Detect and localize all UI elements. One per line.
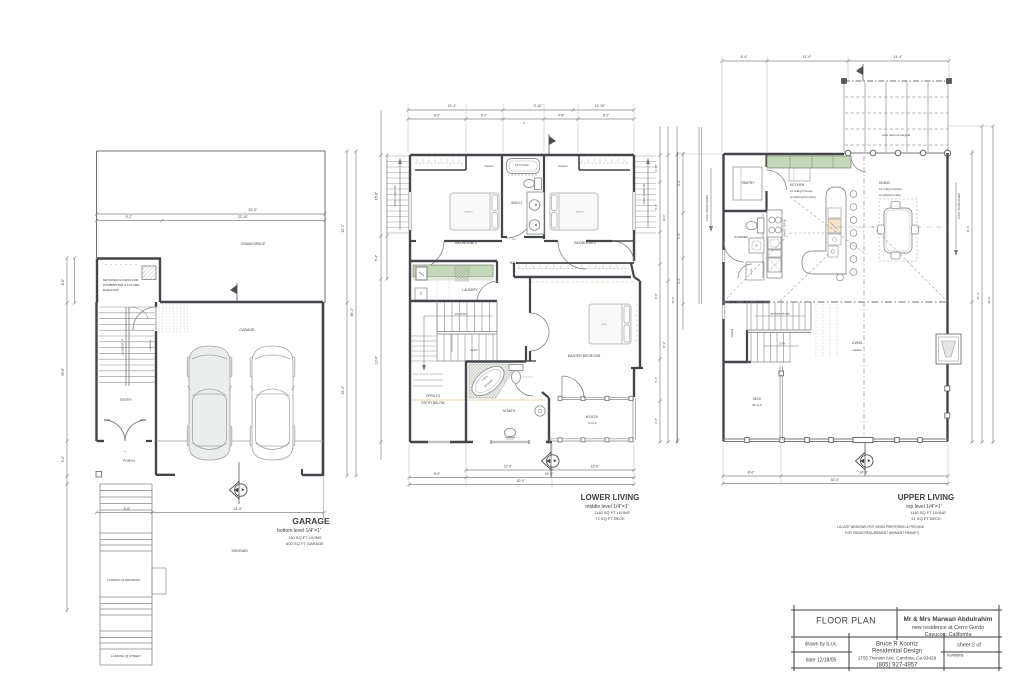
svg-text:king: king <box>601 322 607 326</box>
svg-text:bottom level 1/4"=1': bottom level 1/4"=1' <box>277 528 321 534</box>
svg-text:8'-0": 8'-0" <box>434 472 442 476</box>
svg-text:dresser: dresser <box>558 164 567 168</box>
svg-text:PANTRY: PANTRY <box>742 181 756 185</box>
svg-text:DECK: DECK <box>753 397 763 401</box>
svg-text:OPEN TO: OPEN TO <box>426 394 441 398</box>
svg-text:13 RISERS UP: 13 RISERS UP <box>122 338 125 355</box>
svg-text:8'-8": 8'-8" <box>654 293 658 299</box>
svg-text:33'-6": 33'-6" <box>61 368 65 376</box>
svg-text:FLOOR PLAN: FLOOR PLAN <box>816 616 876 626</box>
svg-text:110 SQ FT LIVING: 110 SQ FT LIVING <box>288 535 321 540</box>
svg-text:queen: queen <box>465 210 473 214</box>
svg-text:conc patio w/ pergola: conc patio w/ pergola <box>882 133 911 137</box>
svg-text:vaulted: vaulted <box>852 348 861 352</box>
svg-text:DINING: DINING <box>879 181 891 185</box>
svg-text:GARAGE: GARAGE <box>239 328 255 332</box>
svg-text:new residence at Cerro G: new residence at Cerro Gordo <box>912 625 984 631</box>
svg-text:5'-4": 5'-4" <box>654 377 658 383</box>
svg-text:5'-4": 5'-4" <box>654 204 658 210</box>
svg-text:16'-6": 16'-6" <box>375 192 379 200</box>
svg-text:8'-0": 8'-0" <box>748 471 756 475</box>
svg-text:landing: landing <box>730 328 734 337</box>
svg-text:6'-6": 6'-6" <box>61 279 65 285</box>
svg-text:5'0 O Tub/shr: 5'0 O Tub/shr <box>515 164 529 167</box>
svg-text:CRAWLSPACE: CRAWLSPACE <box>241 242 266 246</box>
svg-text:46'-0": 46'-0" <box>671 296 675 303</box>
svg-text:72 SQ FT DECK: 72 SQ FT DECK <box>595 516 625 521</box>
svg-text:72 sq ft: 72 sq ft <box>587 421 596 425</box>
svg-text:queen: queen <box>576 210 584 214</box>
svg-text:24'-0": 24'-0" <box>545 472 554 476</box>
svg-text:17'-2": 17'-2" <box>662 341 666 348</box>
svg-text:MASTER BEDROOM: MASTER BEDROOM <box>568 354 601 358</box>
svg-text:CONC 1'4X10 UP: CONC 1'4X10 UP <box>642 183 646 204</box>
svg-text:19'-6": 19'-6" <box>375 356 379 364</box>
svg-text:LANDING @ DRIVEWAY: LANDING @ DRIVEWAY <box>107 578 141 582</box>
svg-text:14'-4": 14'-4" <box>894 55 903 59</box>
svg-text:5'-2": 5'-2" <box>481 114 487 118</box>
svg-text:8'-2": 8'-2" <box>434 114 440 118</box>
svg-text:LIVING: LIVING <box>852 341 863 345</box>
svg-text:DUMBWAITER & FUTURE: DUMBWAITER & FUTURE <box>103 283 139 287</box>
svg-text:DRIVEWAY: DRIVEWAY <box>232 549 250 553</box>
svg-text:30'-0": 30'-0" <box>517 479 526 483</box>
svg-text:ENTRY BELOW: ENTRY BELOW <box>421 401 444 405</box>
svg-text:HANDRAIL: HANDRAIL <box>149 339 152 351</box>
svg-text:FOR SHEAR REQUIREMENT (MOMENT: FOR SHEAR REQUIREMENT (MOMENT FRAME?) <box>845 531 919 535</box>
svg-text:25'-0": 25'-0" <box>341 385 345 394</box>
svg-text:ELEVATOR: ELEVATOR <box>103 288 119 292</box>
svg-text:Mr & Mrs Marwan Abdulrahim: Mr & Mrs Marwan Abdulrahim <box>904 616 993 623</box>
svg-text:w/ coffered s/ table: w/ coffered s/ table <box>879 193 901 197</box>
svg-text:41'-4": 41'-4" <box>976 292 980 299</box>
svg-text:LOWER LIVING: LOWER LIVING <box>581 493 640 502</box>
svg-text:* *: * * <box>124 450 127 454</box>
svg-text:13 R's: 13 R's <box>470 348 478 352</box>
svg-text:2'-4": 2'-4" <box>654 418 658 424</box>
svg-text:13'-0": 13'-0" <box>591 465 600 469</box>
svg-text:sheet 2 of: sheet 2 of <box>957 643 981 649</box>
svg-text:Residential Design: Residential Design <box>872 649 922 655</box>
svg-text:CONC STAIRS DOWN: CONC STAIRS DOWN <box>705 195 709 222</box>
svg-text:(805) 927-4957: (805) 927-4957 <box>876 663 918 669</box>
svg-text:24'-0": 24'-0" <box>234 507 243 511</box>
svg-text:22'-10": 22'-10" <box>238 215 249 219</box>
svg-text:2755 Trenton Ave, Cambria, Ca: 2755 Trenton Ave, Cambria, Ca 93428 <box>858 656 937 661</box>
svg-text:GARAGE: GARAGE <box>292 516 330 526</box>
svg-text:RETAINED ACCESS FOR: RETAINED ACCESS FOR <box>103 278 139 282</box>
svg-text:6'-0": 6'-0" <box>124 507 132 511</box>
svg-text:date 12/18/05: date 12/18/05 <box>806 658 837 664</box>
svg-text:600 SQ FT GARAGE: 600 SQ FT GARAGE <box>286 541 324 546</box>
svg-text:LOCATE WINDOWS PER VIEWS PREFE: LOCATE WINDOWS PER VIEWS PREFERRED & PRO… <box>837 525 924 529</box>
svg-text:10' ceiling lf trusses: 10' ceiling lf trusses <box>790 189 813 193</box>
svg-text:13'-4": 13'-4" <box>448 104 457 108</box>
svg-text:LANDING @ STREET: LANDING @ STREET <box>111 654 141 658</box>
svg-text:KITCHEN: KITCHEN <box>790 183 805 187</box>
svg-text:46'-0": 46'-0" <box>987 296 991 303</box>
svg-text:46'-0": 46'-0" <box>350 307 354 316</box>
svg-text:HALL: HALL <box>510 261 519 265</box>
svg-text:8'-2": 8'-2" <box>603 114 609 118</box>
svg-text:DN 13 R's: DN 13 R's <box>455 312 467 316</box>
svg-text:POWDER: POWDER <box>734 235 748 239</box>
svg-text:RANGE TOP 36: RANGE TOP 36 <box>784 219 787 237</box>
svg-text:24'-0": 24'-0" <box>860 471 869 475</box>
svg-text:drawn by b.r.k.: drawn by b.r.k. <box>805 642 838 648</box>
svg-text:32'-0": 32'-0" <box>248 208 258 212</box>
svg-text:dresser: dresser <box>484 164 493 168</box>
svg-text:revisions: revisions <box>947 653 964 658</box>
svg-text:M BATH: M BATH <box>503 409 516 413</box>
svg-text:BEDROOM 2: BEDROOM 2 <box>574 241 596 245</box>
svg-text:5'-0": 5'-0" <box>61 456 65 462</box>
svg-text:1140 SQ FT LIVING: 1140 SQ FT LIVING <box>594 510 630 515</box>
svg-text:Cayucos, California: Cayucos, California <box>925 632 972 638</box>
svg-text:CONC STAIRS DOWN: CONC STAIRS DOWN <box>957 193 961 220</box>
svg-text:one hand rail entry: one hand rail entry <box>770 313 791 316</box>
svg-text:10'-6": 10'-6" <box>662 214 666 221</box>
svg-text:4'-8": 4'-8" <box>558 114 564 118</box>
svg-text:91 SQ FT DECK: 91 SQ FT DECK <box>911 516 941 521</box>
svg-text:21'-0": 21'-0" <box>341 223 345 232</box>
svg-text:3'-0": 3'-0" <box>512 239 517 241</box>
svg-text:CONC 1'4X10 UP: CONC 1'4X10 UP <box>393 185 397 206</box>
svg-text:9'-10": 9'-10" <box>534 104 543 108</box>
svg-text:11'-4": 11'-4" <box>803 55 812 59</box>
svg-text:9'-2": 9'-2" <box>126 215 134 219</box>
svg-text:2'-10": 2'-10" <box>654 164 658 171</box>
svg-text:M DECK: M DECK <box>586 415 599 419</box>
svg-text:BEDROOM 3: BEDROOM 3 <box>455 241 477 245</box>
svg-text:ENTRY: ENTRY <box>120 398 132 402</box>
svg-text:w/ patterned s/l ceiling: w/ patterned s/l ceiling <box>790 195 816 199</box>
svg-text:1140 SQ FT LIVING: 1140 SQ FT LIVING <box>910 510 946 515</box>
svg-text:91 sq ft: 91 sq ft <box>752 403 761 407</box>
svg-text:6'-4": 6'-4" <box>741 55 749 59</box>
svg-text:13 R's: 13 R's <box>779 344 786 346</box>
svg-text:5'-4": 5'-4" <box>375 255 379 261</box>
svg-text:LAUNDRY: LAUNDRY <box>462 288 478 292</box>
svg-text:32'-0": 32'-0" <box>831 478 840 482</box>
svg-text:BATH 2: BATH 2 <box>512 201 523 205</box>
svg-text:12'-10": 12'-10" <box>595 104 606 108</box>
svg-text:PORCH: PORCH <box>123 459 135 463</box>
svg-text:UPPER LIVING: UPPER LIVING <box>898 493 954 502</box>
svg-text:11'-4": 11'-4" <box>966 226 970 233</box>
svg-text:12'-0": 12'-0" <box>504 465 513 469</box>
svg-text:Bruce R Koontz: Bruce R Koontz <box>876 642 918 648</box>
svg-text:10' ceiling lf trusses: 10' ceiling lf trusses <box>879 187 902 191</box>
